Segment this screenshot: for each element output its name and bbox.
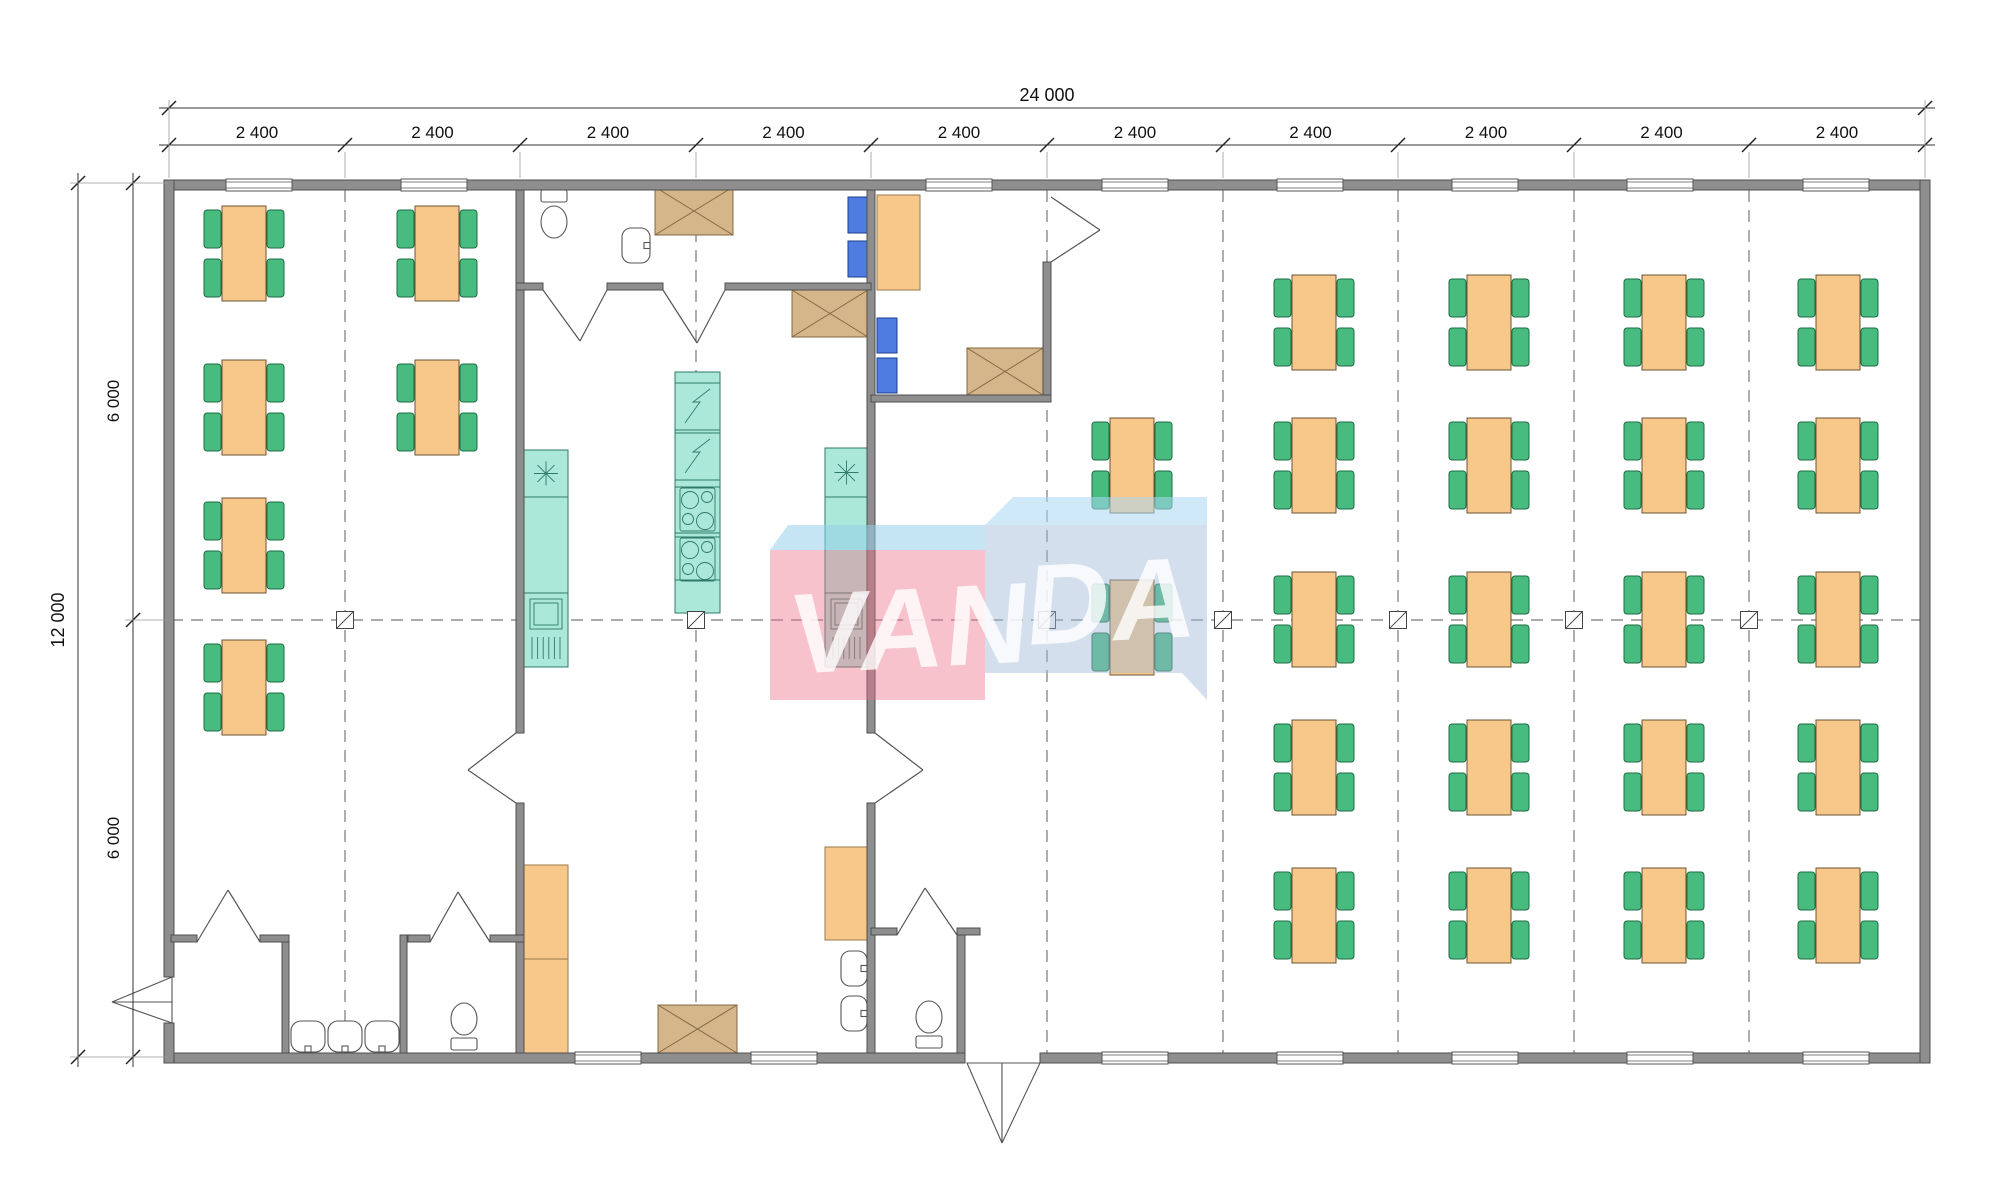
dining-table-unit xyxy=(397,206,477,301)
cabinet-icon xyxy=(792,290,868,337)
dining-table-unit xyxy=(1624,418,1704,513)
chair-icon xyxy=(1274,921,1291,959)
window-icon xyxy=(1102,179,1168,191)
window-icon xyxy=(226,179,292,191)
table-icon xyxy=(415,206,459,301)
chair-icon xyxy=(1449,872,1466,910)
chair-icon xyxy=(1861,625,1878,663)
chair-icon xyxy=(1861,773,1878,811)
chair-icon xyxy=(1687,328,1704,366)
dining-table-unit xyxy=(204,206,284,301)
chair-icon xyxy=(1687,872,1704,910)
blue-chair-icon xyxy=(877,318,897,353)
dim-bay-width: 2 400 xyxy=(1114,123,1157,142)
chair-icon xyxy=(397,413,414,451)
table-icon xyxy=(222,640,266,735)
table-icon xyxy=(1292,868,1336,963)
chair-icon xyxy=(1624,422,1641,460)
chair-icon xyxy=(1624,773,1641,811)
chair-icon xyxy=(267,259,284,297)
toilet-icon xyxy=(916,1001,942,1048)
cabinet-icon xyxy=(658,1005,737,1053)
desk-icon xyxy=(877,195,920,290)
chair-icon xyxy=(1449,576,1466,614)
window-icon xyxy=(401,179,467,191)
chair-icon xyxy=(1798,328,1815,366)
dining-table-unit xyxy=(1798,720,1878,815)
window-icon xyxy=(1803,179,1869,191)
chair-icon xyxy=(1274,576,1291,614)
window-icon xyxy=(1102,1052,1168,1064)
cabinet-icon xyxy=(655,187,733,235)
chair-icon xyxy=(1687,773,1704,811)
floor-plan-page: 24 0002 4002 4002 4002 4002 4002 4002 40… xyxy=(0,0,2000,1196)
chair-icon xyxy=(1687,724,1704,762)
chair-icon xyxy=(1449,471,1466,509)
chair-icon xyxy=(1512,422,1529,460)
chair-icon xyxy=(1274,872,1291,910)
chair-icon xyxy=(204,644,221,682)
cabinet-icon xyxy=(967,348,1043,395)
washbasin-icon xyxy=(291,1021,325,1052)
chair-icon xyxy=(397,210,414,248)
dim-bay-width: 2 400 xyxy=(587,123,630,142)
chair-icon xyxy=(1624,872,1641,910)
table-icon xyxy=(222,206,266,301)
chair-icon xyxy=(267,644,284,682)
table-icon xyxy=(415,360,459,455)
dim-bay-width: 2 400 xyxy=(411,123,454,142)
table-icon xyxy=(1292,418,1336,513)
table-icon xyxy=(222,360,266,455)
desk-icon xyxy=(524,959,568,1053)
chair-icon xyxy=(1449,625,1466,663)
chair-icon xyxy=(204,259,221,297)
chair-icon xyxy=(1512,471,1529,509)
table-icon xyxy=(1642,868,1686,963)
chair-icon xyxy=(267,693,284,731)
washbasin-icon xyxy=(841,951,867,986)
chair-icon xyxy=(1861,471,1878,509)
chair-icon xyxy=(1798,576,1815,614)
chair-icon xyxy=(1337,724,1354,762)
window-icon xyxy=(751,1052,817,1064)
dim-total-depth: 12 000 xyxy=(48,592,68,647)
door-swing-icon xyxy=(543,290,607,341)
chair-icon xyxy=(397,364,414,402)
chair-icon xyxy=(1274,279,1291,317)
chair-icon xyxy=(1449,921,1466,959)
chair-icon xyxy=(1687,625,1704,663)
chair-icon xyxy=(1337,422,1354,460)
chair-icon xyxy=(1274,471,1291,509)
chair-icon xyxy=(1687,279,1704,317)
dining-table-unit xyxy=(1798,868,1878,963)
table-icon xyxy=(1642,572,1686,667)
chair-icon xyxy=(1512,921,1529,959)
chair-icon xyxy=(1861,872,1878,910)
dim-bay-width: 2 400 xyxy=(762,123,805,142)
chair-icon xyxy=(1798,921,1815,959)
table-icon xyxy=(1816,418,1860,513)
table-icon xyxy=(1467,418,1511,513)
chair-icon xyxy=(1274,328,1291,366)
door-swing-icon xyxy=(197,890,260,942)
chair-icon xyxy=(204,693,221,731)
chair-icon xyxy=(1687,422,1704,460)
chair-icon xyxy=(1624,724,1641,762)
chair-icon xyxy=(1861,576,1878,614)
window-icon xyxy=(1277,1052,1343,1064)
chair-icon xyxy=(460,210,477,248)
chair-icon xyxy=(1449,773,1466,811)
door-swing-icon xyxy=(875,733,923,803)
dining-table-unit xyxy=(1274,275,1354,370)
dining-table-unit xyxy=(1798,275,1878,370)
table-icon xyxy=(1292,275,1336,370)
washbasin-icon xyxy=(841,996,867,1031)
chair-icon xyxy=(1624,279,1641,317)
blue-front-face xyxy=(985,525,1207,700)
chair-icon xyxy=(1274,724,1291,762)
dim-bay-width: 2 400 xyxy=(1289,123,1332,142)
dining-table-unit xyxy=(1449,275,1529,370)
chair-icon xyxy=(267,210,284,248)
dim-total-width: 24 000 xyxy=(1019,85,1074,105)
chair-icon xyxy=(1155,422,1172,460)
chair-icon xyxy=(1337,625,1354,663)
desk-icon xyxy=(524,865,568,959)
chair-icon xyxy=(1798,279,1815,317)
window-icon xyxy=(1627,179,1693,191)
washbasin-icon xyxy=(328,1021,362,1052)
dim-bay-width: 2 400 xyxy=(236,123,279,142)
dining-table-unit xyxy=(397,360,477,455)
chair-icon xyxy=(1512,773,1529,811)
entrance-double-door-icon xyxy=(112,977,172,1023)
washbasin-icon xyxy=(365,1021,399,1052)
dining-table-unit xyxy=(204,640,284,735)
table-icon xyxy=(1467,720,1511,815)
chair-icon xyxy=(204,364,221,402)
chair-icon xyxy=(397,259,414,297)
dining-table-unit xyxy=(1449,418,1529,513)
chair-icon xyxy=(1274,625,1291,663)
chair-icon xyxy=(1512,328,1529,366)
table-icon xyxy=(1292,720,1336,815)
dim-bay-width: 2 400 xyxy=(1816,123,1859,142)
window-icon xyxy=(1627,1052,1693,1064)
chair-icon xyxy=(1687,471,1704,509)
table-icon xyxy=(1292,572,1336,667)
blue-top-face xyxy=(985,497,1207,525)
dining-table-unit xyxy=(1449,720,1529,815)
door-swing-icon xyxy=(897,888,957,935)
chair-icon xyxy=(460,364,477,402)
table-icon xyxy=(1816,868,1860,963)
chair-icon xyxy=(460,259,477,297)
dining-table-unit xyxy=(1624,720,1704,815)
window-icon xyxy=(1803,1052,1869,1064)
chair-icon xyxy=(1861,422,1878,460)
dim-bay-width: 2 400 xyxy=(1640,123,1683,142)
chair-icon xyxy=(1449,279,1466,317)
chair-icon xyxy=(1092,422,1109,460)
chair-icon xyxy=(1798,422,1815,460)
dim-bay-width: 2 400 xyxy=(938,123,981,142)
door-swing-icon xyxy=(468,733,516,803)
kitchen-island xyxy=(675,372,720,613)
toilet-icon xyxy=(451,1003,477,1050)
window-icon xyxy=(1452,179,1518,191)
chair-icon xyxy=(1274,773,1291,811)
chair-icon xyxy=(1337,471,1354,509)
chair-icon xyxy=(1624,328,1641,366)
chair-icon xyxy=(1449,422,1466,460)
chair-icon xyxy=(1512,625,1529,663)
chair-icon xyxy=(204,551,221,589)
table-icon xyxy=(222,498,266,593)
table-icon xyxy=(1642,418,1686,513)
chair-icon xyxy=(1624,625,1641,663)
blue-chair-icon xyxy=(877,358,897,393)
table-icon xyxy=(1816,572,1860,667)
chair-icon xyxy=(204,502,221,540)
chair-icon xyxy=(1512,279,1529,317)
chair-icon xyxy=(1798,471,1815,509)
window-icon xyxy=(1452,1052,1518,1064)
toilet-icon xyxy=(541,190,567,238)
chair-icon xyxy=(1449,724,1466,762)
table-icon xyxy=(1467,868,1511,963)
chair-icon xyxy=(1512,872,1529,910)
chair-icon xyxy=(1687,576,1704,614)
pink-front-face xyxy=(770,550,985,700)
window-icon xyxy=(1277,179,1343,191)
dining-table-unit xyxy=(1798,418,1878,513)
dining-table-unit xyxy=(1624,868,1704,963)
desk-icon xyxy=(825,847,868,940)
chair-icon xyxy=(267,551,284,589)
dining-table-unit xyxy=(204,360,284,455)
chair-icon xyxy=(1798,872,1815,910)
chair-icon xyxy=(1337,773,1354,811)
kitchen-counter xyxy=(524,450,568,667)
window-icon xyxy=(575,1052,641,1064)
dining-table-unit xyxy=(1798,572,1878,667)
dim-half-depth: 6 000 xyxy=(104,817,123,860)
door-swing-icon xyxy=(663,290,725,343)
chair-icon xyxy=(1861,921,1878,959)
watermark-logo xyxy=(770,497,1207,700)
chair-icon xyxy=(204,413,221,451)
chair-icon xyxy=(1624,921,1641,959)
chair-icon xyxy=(1274,422,1291,460)
chair-icon xyxy=(1449,328,1466,366)
table-icon xyxy=(1467,275,1511,370)
chair-icon xyxy=(1798,625,1815,663)
dining-table-unit xyxy=(1624,275,1704,370)
window-icon xyxy=(926,179,992,191)
table-icon xyxy=(1642,275,1686,370)
chair-icon xyxy=(1512,724,1529,762)
chair-icon xyxy=(267,413,284,451)
dining-table-unit xyxy=(1274,418,1354,513)
chair-icon xyxy=(1861,279,1878,317)
chair-icon xyxy=(204,210,221,248)
chair-icon xyxy=(267,364,284,402)
table-icon xyxy=(1467,572,1511,667)
dim-half-depth: 6 000 xyxy=(104,380,123,423)
floor-plan-drawing: 24 0002 4002 4002 4002 4002 4002 4002 40… xyxy=(0,0,2000,1196)
chair-icon xyxy=(1861,724,1878,762)
chair-icon xyxy=(1337,328,1354,366)
door-swing-icon xyxy=(1051,197,1100,262)
dim-bay-width: 2 400 xyxy=(1465,123,1508,142)
dining-table-unit xyxy=(1274,868,1354,963)
chair-icon xyxy=(1687,921,1704,959)
chair-icon xyxy=(1337,576,1354,614)
chair-icon xyxy=(1861,328,1878,366)
chair-icon xyxy=(1337,279,1354,317)
chair-icon xyxy=(1512,576,1529,614)
dining-table-unit xyxy=(1449,868,1529,963)
pink-top-face xyxy=(770,525,985,550)
entrance-double-door-icon xyxy=(967,1063,1040,1143)
chair-icon xyxy=(267,502,284,540)
chair-icon xyxy=(460,413,477,451)
chair-icon xyxy=(1624,471,1641,509)
chair-icon xyxy=(1337,921,1354,959)
dining-table-unit xyxy=(1274,720,1354,815)
chair-icon xyxy=(1798,724,1815,762)
table-icon xyxy=(1642,720,1686,815)
chair-icon xyxy=(1624,576,1641,614)
dining-table-unit xyxy=(204,498,284,593)
chair-icon xyxy=(1337,872,1354,910)
table-icon xyxy=(1816,275,1860,370)
chair-icon xyxy=(1798,773,1815,811)
table-icon xyxy=(1816,720,1860,815)
washbasin-icon xyxy=(622,228,650,263)
door-swing-icon xyxy=(430,892,490,942)
